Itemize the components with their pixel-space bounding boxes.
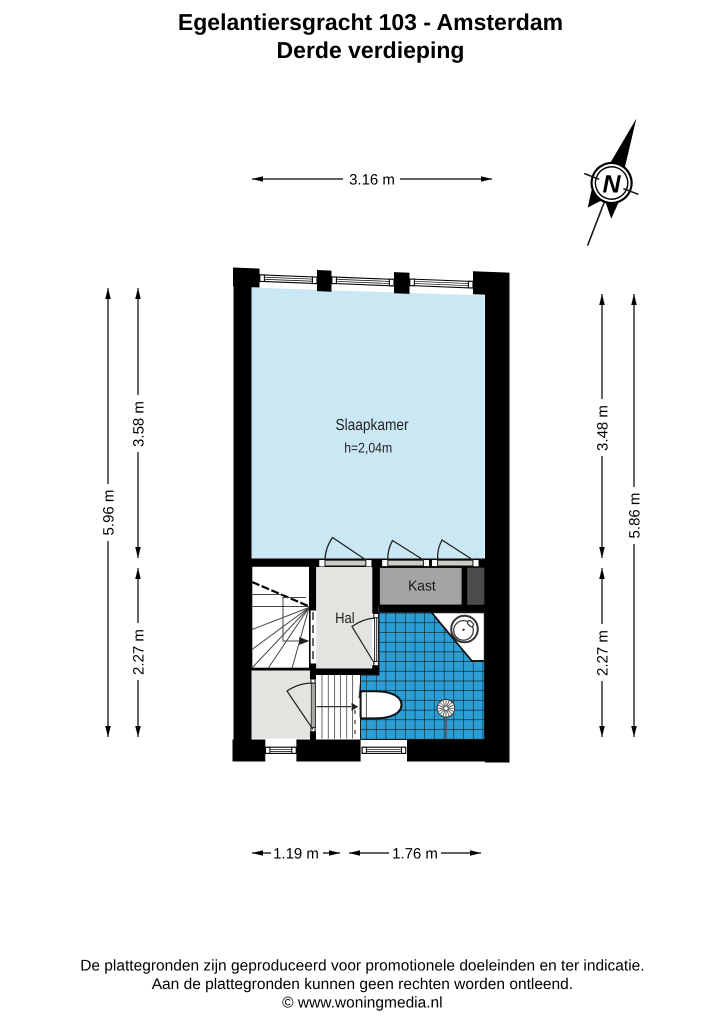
svg-text:h=2,04m: h=2,04m (344, 440, 392, 456)
svg-text:2.27 m: 2.27 m (131, 629, 148, 675)
svg-text:3.16 m: 3.16 m (349, 172, 395, 189)
svg-text:Kast: Kast (408, 579, 436, 595)
svg-text:3.48 m: 3.48 m (595, 405, 612, 451)
svg-text:1.76 m: 1.76 m (392, 846, 438, 863)
svg-text:5.86 m: 5.86 m (627, 493, 644, 539)
svg-text:Slaapkamer: Slaapkamer (336, 417, 410, 434)
svg-text:© www.woningmedia.nl: © www.woningmedia.nl (282, 995, 442, 1012)
svg-text:N: N (602, 171, 621, 199)
svg-text:Derde verdieping: Derde verdieping (277, 37, 465, 63)
svg-text:De plattegronden zijn geproduc: De plattegronden zijn geproduceerd voor … (80, 958, 644, 975)
svg-text:2.27 m: 2.27 m (595, 630, 612, 676)
svg-text:1.19 m: 1.19 m (273, 846, 319, 863)
svg-text:Hal: Hal (335, 610, 355, 627)
svg-text:Egelantiersgracht 103 - Amster: Egelantiersgracht 103 - Amsterdam (178, 9, 563, 35)
svg-text:3.58 m: 3.58 m (131, 401, 148, 447)
svg-text:Aan de plattegronden kunnen ge: Aan de plattegronden kunnen geen rechten… (152, 976, 573, 993)
svg-text:5.96 m: 5.96 m (101, 490, 118, 536)
